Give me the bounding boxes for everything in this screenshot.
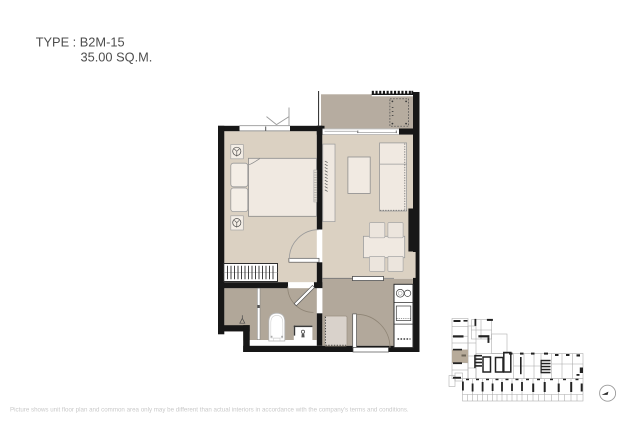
svg-text:Picture shows unit floor plan: Picture shows unit floor plan and common… xyxy=(10,407,409,414)
svg-text:35.00 SQ.M.: 35.00 SQ.M. xyxy=(81,49,153,64)
svg-text:TYPE : B2M-15: TYPE : B2M-15 xyxy=(36,35,125,50)
